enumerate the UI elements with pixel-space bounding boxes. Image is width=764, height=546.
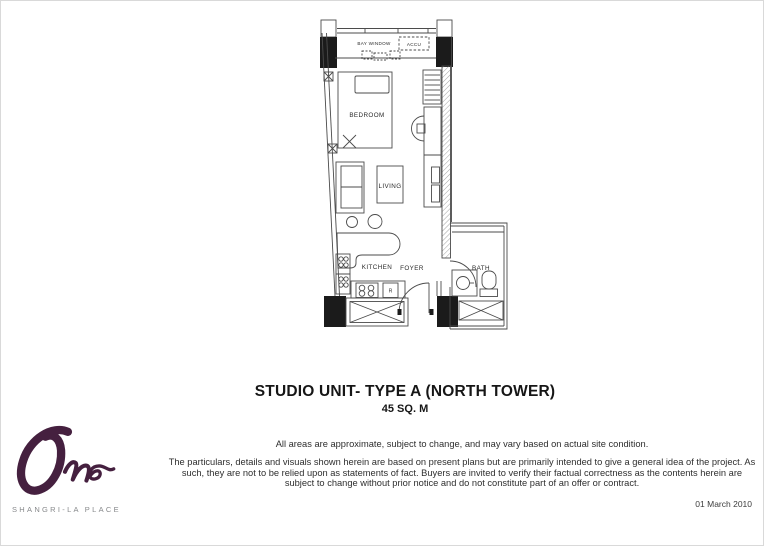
logo-letter-o [21, 430, 68, 491]
toilet-icon [480, 271, 498, 297]
one-logo-wordmark [12, 424, 116, 502]
bath-label: BATH [472, 265, 490, 272]
living-label: LIVING [378, 183, 401, 190]
disclaimer-line1: All areas are approximate, subject to ch… [167, 439, 757, 449]
room-labels: BAY WINDOW ACCU BEDROOM LIVING KITCHEN F… [349, 41, 490, 295]
disclaimer-block: All areas are approximate, subject to ch… [167, 439, 757, 489]
foyer-label: FOYER [400, 265, 424, 272]
bedroom-label: BEDROOM [349, 112, 384, 119]
floor-plan-drawing: BAY WINDOW ACCU BEDROOM LIVING KITCHEN F… [300, 15, 515, 350]
logo-block: SHANGRI-LA PLACE [12, 424, 122, 514]
bath-sink-icon [452, 270, 477, 296]
logo-letter-n [65, 462, 89, 480]
stove-icon [356, 283, 378, 298]
date-stamp: 01 March 2010 [695, 499, 752, 509]
bay-window-label: BAY WINDOW [357, 41, 391, 46]
kitchen-label: KITCHEN [362, 264, 392, 271]
wardrobe-cabinets [411, 70, 441, 207]
title-block: STUDIO UNIT- TYPE A (NORTH TOWER) 45 SQ.… [46, 383, 764, 415]
bath-area [450, 223, 507, 329]
brochure-page: BAY WINDOW ACCU BEDROOM LIVING KITCHEN F… [0, 0, 764, 546]
fcu-dashed-symbol [362, 51, 400, 60]
living-area [336, 162, 403, 229]
planter-ledges [346, 298, 503, 326]
unit-area: 45 SQ. M [46, 403, 764, 415]
accu-label: ACCU [407, 42, 421, 47]
logo-letter-e [89, 466, 113, 479]
unit-title: STUDIO UNIT- TYPE A (NORTH TOWER) [46, 383, 764, 401]
logo-subtitle: SHANGRI-LA PLACE [12, 505, 122, 514]
refrigerator-label: R [389, 289, 393, 295]
disclaimer-para2: The particulars, details and visuals sho… [167, 457, 757, 488]
